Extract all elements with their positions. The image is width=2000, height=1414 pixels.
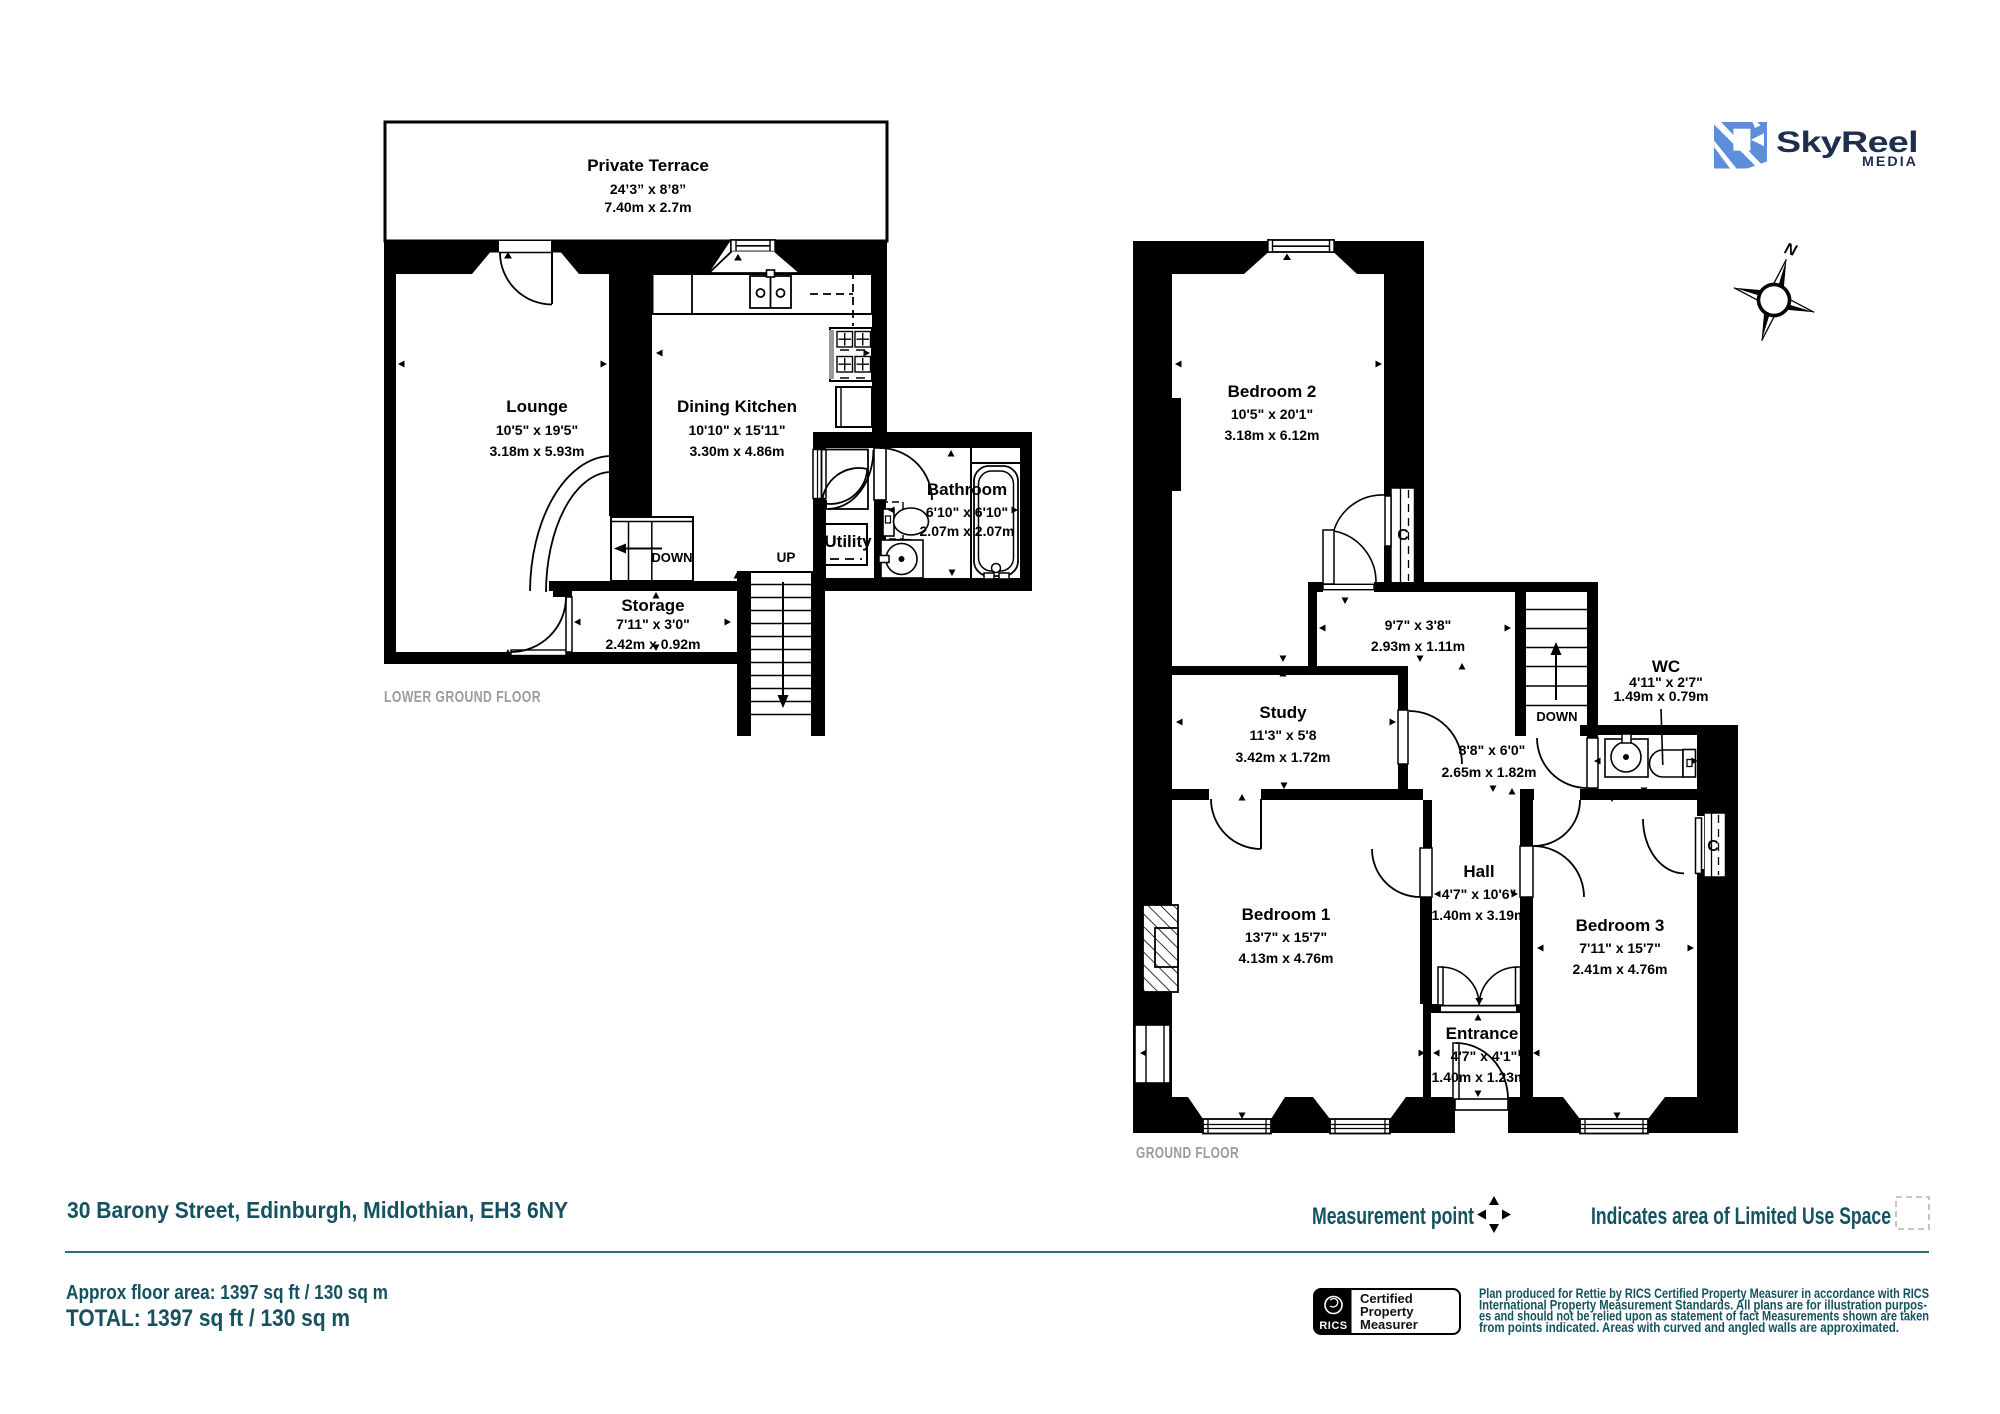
svg-text:1.40m x 1.23m: 1.40m x 1.23m xyxy=(1432,1069,1527,1085)
svg-text:Measurer: Measurer xyxy=(1360,1317,1418,1332)
svg-text:Bathroom: Bathroom xyxy=(927,480,1007,499)
svg-text:Hall: Hall xyxy=(1463,862,1494,881)
svg-text:Bedroom 1: Bedroom 1 xyxy=(1242,905,1331,924)
svg-text:10'5" x 19'5": 10'5" x 19'5" xyxy=(496,422,578,438)
svg-text:11'3" x 5'8: 11'3" x 5'8 xyxy=(1249,727,1316,743)
svg-text:Private Terrace: Private Terrace xyxy=(587,156,709,175)
svg-text:7'11" x 15'7": 7'11" x 15'7" xyxy=(1579,940,1660,956)
svg-text:24’3” x 8’8”: 24’3” x 8’8” xyxy=(610,181,686,197)
svg-text:10'5" x 20'1": 10'5" x 20'1" xyxy=(1231,406,1313,422)
svg-text:3.42m x 1.72m: 3.42m x 1.72m xyxy=(1236,749,1331,765)
svg-text:4'7" x 4'1": 4'7" x 4'1" xyxy=(1451,1048,1518,1064)
svg-text:Utility: Utility xyxy=(824,532,872,551)
svg-text:from points indicated. Areas w: from points indicated. Areas with curved… xyxy=(1479,1320,1899,1335)
svg-text:4'7" x 10'6": 4'7" x 10'6" xyxy=(1442,886,1516,902)
svg-text:3.18m x 6.12m: 3.18m x 6.12m xyxy=(1225,427,1320,443)
svg-text:2.41m x 4.76m: 2.41m x 4.76m xyxy=(1573,961,1668,977)
svg-text:DOWN: DOWN xyxy=(651,550,692,565)
svg-text:8'8" x 6'0": 8'8" x 6'0" xyxy=(1459,742,1526,758)
svg-text:Lounge: Lounge xyxy=(506,397,567,416)
svg-text:Indicates area of Limited Use: Indicates area of Limited Use Space xyxy=(1591,1203,1891,1230)
svg-text:Measurement point: Measurement point xyxy=(1312,1203,1474,1230)
svg-text:2.65m x 1.82m: 2.65m x 1.82m xyxy=(1442,764,1537,780)
svg-text:C: C xyxy=(1397,527,1409,544)
svg-text:LOWER GROUND FLOOR: LOWER GROUND FLOOR xyxy=(384,689,541,706)
svg-text:2.42m x 0.92m: 2.42m x 0.92m xyxy=(606,636,701,652)
svg-text:6'10" x 6'10": 6'10" x 6'10" xyxy=(926,504,1008,520)
svg-text:GROUND FLOOR: GROUND FLOOR xyxy=(1136,1145,1239,1162)
svg-text:DOWN: DOWN xyxy=(1536,709,1577,724)
svg-text:Study: Study xyxy=(1259,703,1307,722)
svg-text:3.30m x 4.86m: 3.30m x 4.86m xyxy=(690,443,785,459)
svg-text:7.40m x 2.7m: 7.40m x 2.7m xyxy=(604,199,691,215)
svg-text:10'10" x 15'11": 10'10" x 15'11" xyxy=(688,422,785,438)
svg-text:7'11" x 3'0": 7'11" x 3'0" xyxy=(616,616,690,632)
svg-text:4.13m x 4.76m: 4.13m x 4.76m xyxy=(1239,950,1334,966)
svg-text:C: C xyxy=(1707,838,1719,855)
svg-text:2.93m x 1.11m: 2.93m x 1.11m xyxy=(1371,638,1465,654)
svg-text:13'7" x 15'7": 13'7" x 15'7" xyxy=(1245,929,1327,945)
svg-text:Bedroom 3: Bedroom 3 xyxy=(1576,916,1665,935)
svg-text:1.49m x 0.79m: 1.49m x 0.79m xyxy=(1614,688,1709,704)
svg-text:9'7" x 3'8": 9'7" x 3'8" xyxy=(1385,617,1452,633)
svg-text:30 Barony Street, Edinburgh, M: 30 Barony Street, Edinburgh, Midlothian,… xyxy=(67,1197,568,1223)
svg-text:3.18m x 5.93m: 3.18m x 5.93m xyxy=(490,443,585,459)
svg-text:TOTAL: 1397 sq ft / 130 sq m: TOTAL: 1397 sq ft / 130 sq m xyxy=(66,1305,350,1332)
svg-text:1.40m x 3.19m: 1.40m x 3.19m xyxy=(1432,907,1527,923)
svg-text:Approx floor area: 1397 sq ft: Approx floor area: 1397 sq ft / 130 sq m xyxy=(66,1282,388,1304)
svg-text:RICS: RICS xyxy=(1319,1320,1347,1332)
svg-text:Dining Kitchen: Dining Kitchen xyxy=(677,397,797,416)
svg-text:Entrance: Entrance xyxy=(1446,1024,1519,1043)
svg-text:UP: UP xyxy=(777,550,796,565)
svg-text:Storage: Storage xyxy=(621,596,684,615)
svg-text:2.07m x 2.07m: 2.07m x 2.07m xyxy=(920,523,1015,539)
svg-text:MEDIA: MEDIA xyxy=(1862,153,1918,169)
svg-text:Bedroom 2: Bedroom 2 xyxy=(1228,382,1317,401)
